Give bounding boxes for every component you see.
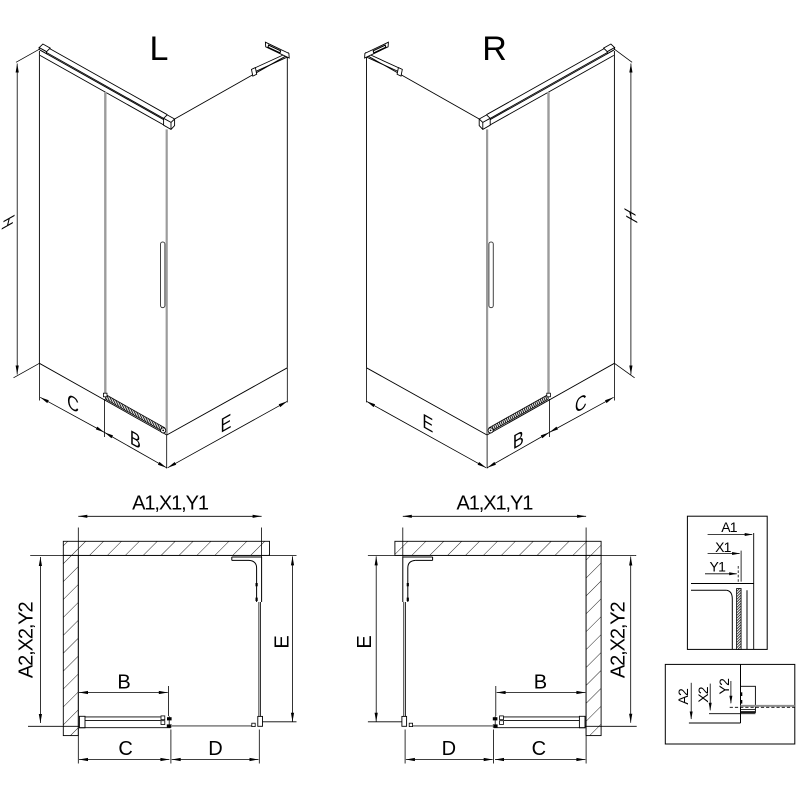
svg-text:R: R (482, 30, 507, 68)
svg-text:Y1: Y1 (710, 558, 727, 574)
svg-text:D: D (208, 738, 222, 760)
svg-text:C: C (118, 738, 132, 760)
svg-text:A2,X2,Y2: A2,X2,Y2 (608, 601, 630, 678)
svg-text:E: E (354, 635, 376, 648)
svg-text:A1: A1 (721, 519, 738, 535)
svg-text:A2: A2 (675, 688, 691, 705)
svg-text:A2,X2,Y2: A2,X2,Y2 (15, 601, 37, 678)
svg-text:Y2: Y2 (716, 678, 732, 695)
svg-text:C: C (532, 738, 546, 760)
svg-text:A1,X1,Y1: A1,X1,Y1 (132, 493, 209, 515)
svg-text:H: H (0, 211, 19, 233)
svg-text:D: D (442, 738, 456, 760)
svg-text:E: E (221, 409, 232, 438)
svg-text:L: L (150, 30, 169, 68)
svg-text:B: B (513, 426, 524, 455)
svg-text:C: C (575, 389, 587, 418)
svg-text:C: C (67, 389, 79, 418)
svg-text:E: E (422, 409, 433, 438)
svg-text:X1: X1 (715, 539, 732, 555)
svg-text:B: B (117, 672, 130, 694)
svg-text:B: B (130, 426, 141, 455)
svg-text:E: E (272, 635, 294, 648)
svg-text:A1,X1,Y1: A1,X1,Y1 (457, 493, 534, 515)
svg-text:X2: X2 (695, 686, 711, 703)
svg-text:B: B (534, 672, 547, 694)
